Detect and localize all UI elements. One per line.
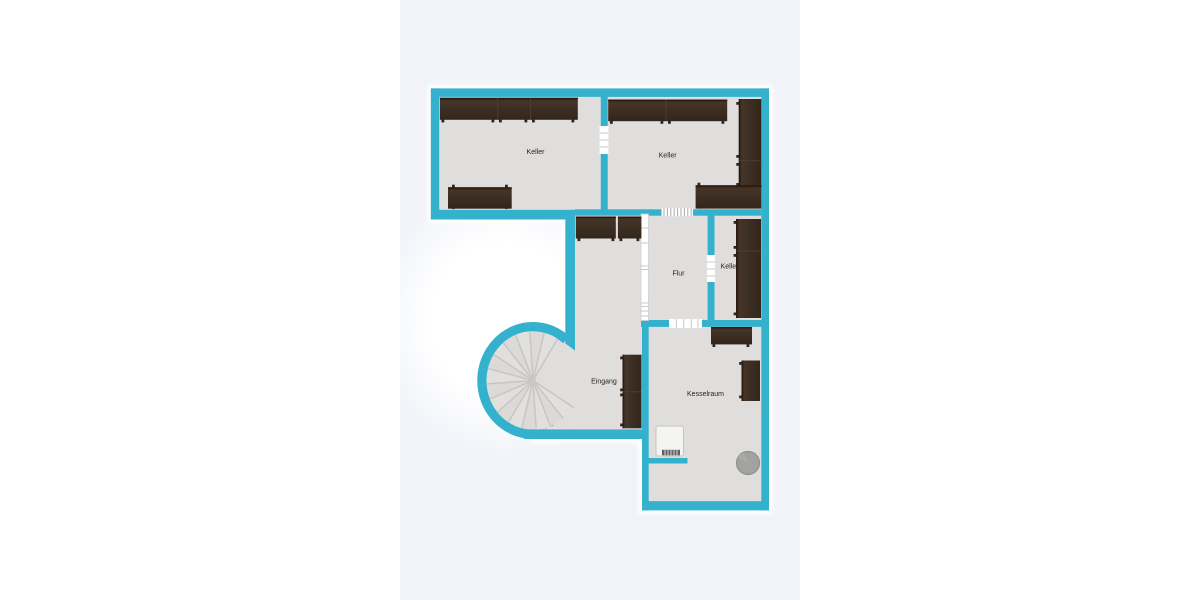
svg-text:Keller: Keller — [659, 153, 678, 160]
svg-text:Keller: Keller — [721, 264, 740, 271]
svg-text:Keller: Keller — [527, 149, 546, 156]
svg-text:Kesselraum: Kesselraum — [687, 391, 724, 398]
svg-text:Eingang: Eingang — [591, 379, 617, 386]
svg-text:Flur: Flur — [672, 271, 685, 278]
